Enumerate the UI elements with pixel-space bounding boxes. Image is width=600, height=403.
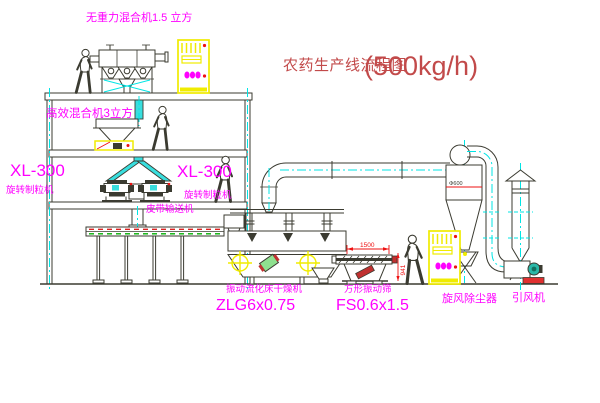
label-dryer-name: 振动流化床干燥机 xyxy=(226,283,303,295)
fluid-bed-dryer xyxy=(224,210,346,285)
operator-figure-ground xyxy=(405,235,422,283)
label-granulator-left: 旋转制粒机 xyxy=(6,184,54,196)
rotary-granulators xyxy=(100,157,172,231)
gravity-free-mixer xyxy=(90,45,168,93)
dim-screen-length: 1500 xyxy=(360,242,375,249)
label-xl300-left: XL-300 xyxy=(10,161,65,180)
label-fan: 引风机 xyxy=(512,290,545,304)
operator-figure-roof xyxy=(76,49,91,92)
cyclone-diameter-label: Φ600 xyxy=(449,181,463,187)
drawing-canvas: Φ600 xyxy=(0,0,600,403)
label-belt-conveyor: 皮带输送机 xyxy=(146,203,194,215)
label-high-eff-mixer: 高效混合机3立方 xyxy=(46,106,133,120)
label-gravity-mixer: 无重力混合机1.5 立方 xyxy=(86,10,192,24)
induced-draft-fan xyxy=(504,261,544,284)
label-screen-name: 方形振动筛 xyxy=(344,283,392,295)
operator-figure-floor2 xyxy=(153,106,168,149)
label-granulator-mid: 旋转制粒机 xyxy=(184,189,232,201)
label-screen-model: FS0.6x1.5 xyxy=(336,297,409,314)
control-cabinet-bottom xyxy=(429,231,460,284)
dim-screen-height: 941 xyxy=(400,264,407,275)
label-cyclone: 旋风除尘器 xyxy=(442,291,497,305)
control-cabinet-top xyxy=(178,40,209,93)
cad-flow-diagram: Φ600 xyxy=(0,0,600,403)
diagram-title-capacity: (500kg/h) xyxy=(364,51,478,81)
label-dryer-model: ZLG6x0.75 xyxy=(216,297,295,314)
high-efficiency-mixer xyxy=(93,96,143,150)
label-xl300-mid: XL-300 xyxy=(177,162,232,181)
exhaust-duct xyxy=(260,161,452,214)
belt-conveyor xyxy=(86,227,224,283)
